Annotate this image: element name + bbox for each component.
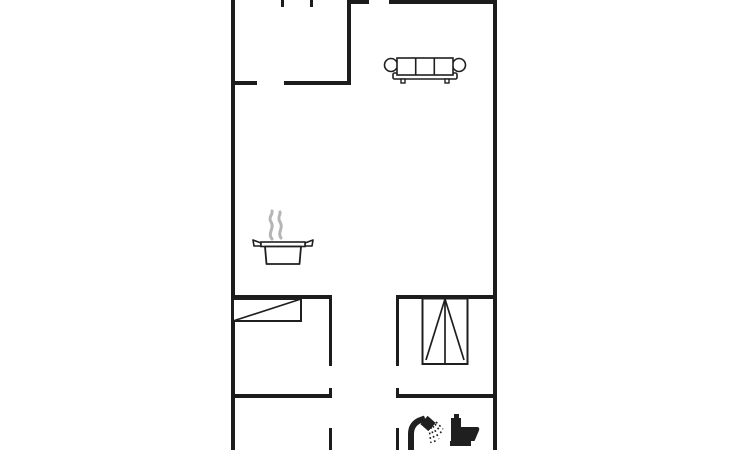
corridor-west-wall-lower bbox=[329, 428, 332, 450]
corridor-east-wall-lower bbox=[396, 428, 399, 450]
outer-wall-east bbox=[493, 0, 497, 450]
outer-wall-west bbox=[231, 0, 235, 450]
wardrobe-icon bbox=[421, 297, 469, 366]
shower-icon bbox=[406, 414, 444, 450]
toilet-icon bbox=[448, 412, 482, 448]
hall-living-divider-wall bbox=[347, 0, 351, 85]
bed-icon bbox=[232, 297, 303, 322]
corridor-west-wall-upper bbox=[329, 295, 332, 366]
entrance-door-jamb-west bbox=[281, 0, 284, 7]
bedroom-south-wall-west bbox=[231, 394, 332, 398]
entrance-door-jamb-east bbox=[310, 0, 313, 7]
bedroom-south-wall-east bbox=[396, 394, 497, 398]
sofa-icon bbox=[383, 54, 467, 84]
hall-south-wall-east-segment bbox=[284, 81, 351, 85]
living-room-north-wall-east-segment bbox=[389, 0, 497, 4]
hall-south-wall-west-segment bbox=[231, 81, 257, 85]
corridor-east-wall-upper bbox=[396, 295, 399, 366]
floor-plan bbox=[0, 0, 730, 450]
cooking-pot-icon bbox=[250, 209, 316, 266]
